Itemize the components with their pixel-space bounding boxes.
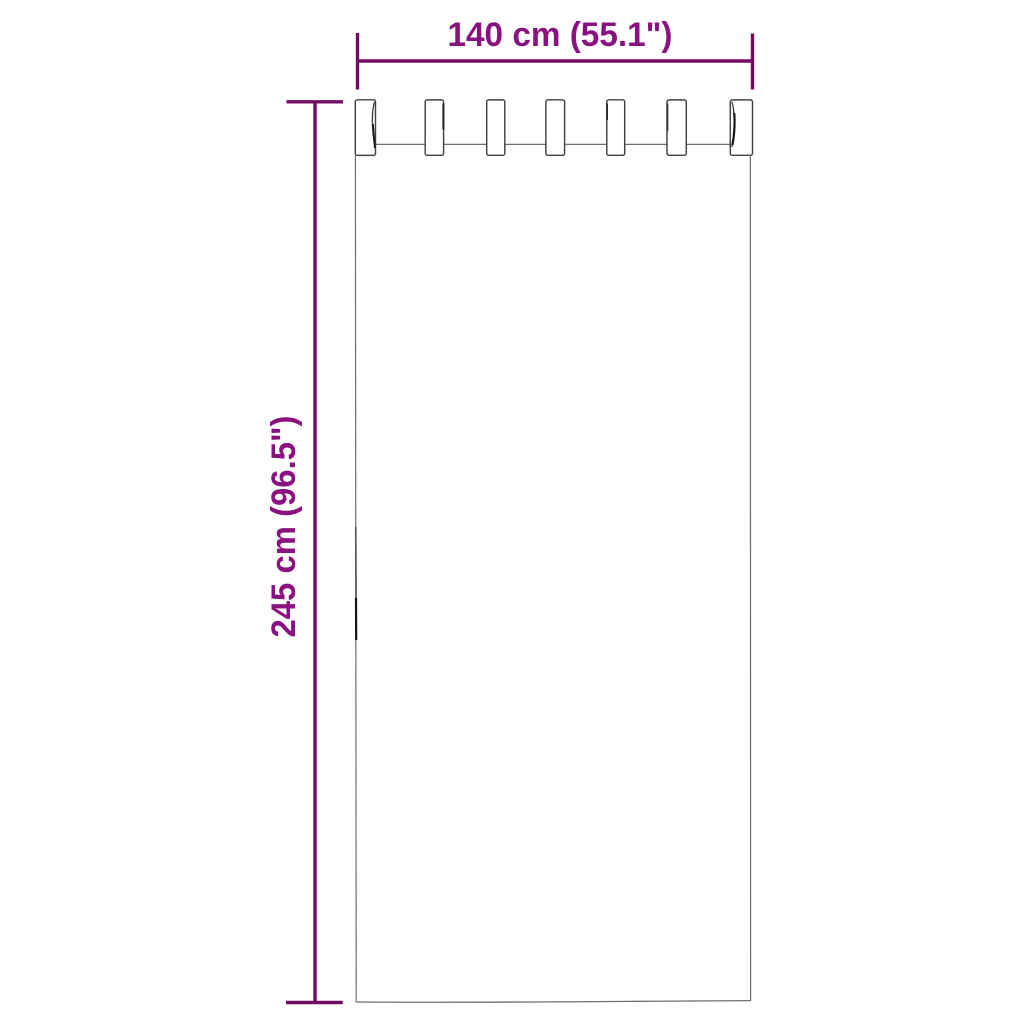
svg-text:140 cm (55.1"): 140 cm (55.1")	[448, 16, 673, 54]
svg-text:245 cm (96.5"): 245 cm (96.5")	[265, 416, 303, 638]
